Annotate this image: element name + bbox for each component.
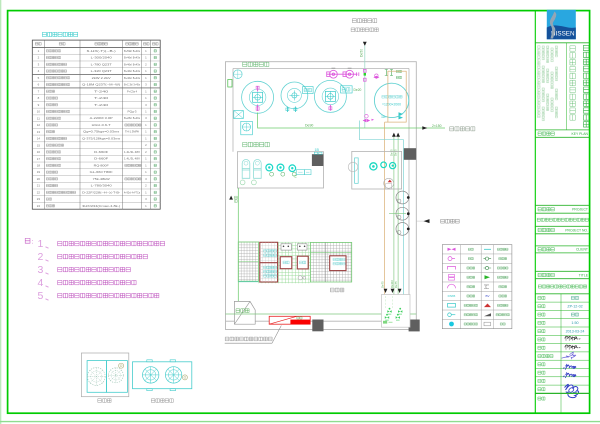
- svg-text:De75: De75: [380, 281, 384, 288]
- svg-text:4: 4: [38, 277, 44, 289]
- svg-text:BV: BV: [485, 294, 489, 298]
- svg-text:TH-1.3MPA: TH-1.3MPA: [125, 130, 139, 134]
- svg-text:6-HX(-T)(--B-): 6-HX(-T)(--B-): [87, 49, 116, 53]
- svg-text:De50: De50: [360, 49, 364, 57]
- svg-text:RQ-800F: RQ-800F: [94, 163, 109, 167]
- svg-text:L-320 Q23T: L-320 Q23T: [91, 69, 113, 73]
- svg-text:TITLE: TITLE: [579, 273, 589, 277]
- svg-text:D-660F: D-660F: [94, 150, 109, 154]
- svg-text:2kW 2.2kV: 2kW 2.2kV: [92, 76, 111, 80]
- svg-text:HGU-0.6-T: HGU-0.6-T: [92, 123, 112, 127]
- svg-text:2013-03-24: 2013-03-24: [566, 329, 585, 333]
- svg-text:10: 10: [37, 110, 41, 114]
- svg-text:23: 23: [37, 197, 41, 201]
- svg-text:75k-48kW: 75k-48kW: [93, 177, 111, 181]
- svg-text:Qg=0.75kgs=0.03ms: Qg=0.75kgs=0.03ms: [83, 130, 120, 134]
- svg-text:18: 18: [37, 164, 41, 168]
- svg-text:T-240: T-240: [94, 89, 109, 93]
- svg-text:L-300/2040: L-300/2040: [91, 56, 113, 60]
- svg-text:2: 2: [38, 251, 44, 263]
- svg-text:3HX/234(Cmax-4.8k-): 3HX/234(Cmax-4.8k-): [82, 204, 120, 208]
- svg-text:De75: De75: [394, 149, 398, 156]
- svg-text:16: 16: [37, 150, 41, 154]
- svg-text:D-660F: D-660F: [94, 157, 109, 161]
- svg-text:L-780/3040: L-780/3040: [91, 184, 113, 188]
- svg-text:14: 14: [37, 137, 41, 141]
- svg-text:1B: 1B: [315, 148, 320, 152]
- svg-text:B+46s/ B+43s: B+46s/ B+43s: [124, 69, 141, 73]
- svg-text:De20: De20: [354, 88, 362, 92]
- svg-text:1A: 1A: [381, 115, 386, 119]
- svg-text:21: 21: [37, 184, 41, 188]
- svg-text:5: 5: [38, 290, 44, 302]
- svg-text:De75: De75: [394, 281, 398, 288]
- svg-text:17: 17: [37, 157, 41, 161]
- svg-text:PROJECT NO.: PROJECT NO.: [565, 228, 588, 232]
- svg-text:T-240: T-240: [94, 96, 109, 100]
- svg-text:GL-660 T80F: GL-660 T80F: [90, 170, 114, 174]
- svg-text:A-220M 3.0P: A-220M 3.0P: [90, 116, 113, 120]
- svg-text:B+46s/ B+43s: B+46s/ B+43s: [124, 56, 141, 60]
- svg-text:=1200×2000: =1200×2000: [382, 102, 401, 106]
- svg-text:1.4L/3L 48V: 1.4L/3L 48V: [124, 157, 140, 161]
- svg-text:B+46s/ B+43s: B+46s/ B+43s: [124, 62, 141, 66]
- svg-text:1:50: 1:50: [571, 321, 578, 325]
- svg-text:PROJECT: PROJECT: [572, 208, 588, 212]
- svg-text:Q-18M Q23T(--M--W): Q-18M Q23T(--M--W): [82, 83, 120, 87]
- svg-text:B+59k/ B+40s: B+59k/ B+40s: [124, 49, 141, 53]
- svg-text:T-240: T-240: [94, 103, 109, 107]
- svg-text:B+C.3k/ 3+45s: B+C.3k/ 3+45s: [124, 83, 141, 87]
- svg-text:DN65: DN65: [448, 294, 456, 298]
- svg-text:13: 13: [37, 130, 41, 134]
- svg-text:20: 20: [37, 177, 41, 181]
- svg-text:22: 22: [37, 190, 41, 194]
- svg-text:11: 11: [37, 116, 40, 120]
- svg-text:D-22F/228(--H--)(-T-B-: D-22F/228(--H--)(-T-B-: [82, 190, 120, 194]
- svg-text:12: 12: [37, 123, 41, 127]
- svg-text:Q-375/128kgs=0.03ms: Q-375/128kgs=0.03ms: [82, 136, 121, 140]
- svg-text:3: 3: [38, 264, 44, 276]
- svg-text:4+92s/ 4+F7Ca: 4+92s/ 4+F7Ca: [124, 190, 140, 194]
- svg-text:24: 24: [37, 204, 41, 208]
- svg-text:1: 1: [38, 238, 44, 250]
- svg-text:ZP-12-02: ZP-12-02: [567, 305, 582, 309]
- svg-text:De110: De110: [390, 280, 394, 288]
- svg-text:19: 19: [37, 170, 41, 174]
- svg-text:De90: De90: [305, 123, 313, 127]
- svg-text:15: 15: [37, 143, 41, 147]
- svg-text:KEY PLAN: KEY PLAN: [571, 132, 588, 136]
- svg-text:P+C3a 4: P+C3a 4: [127, 89, 138, 93]
- svg-text:B+28s/ B+46s: B+28s/ B+46s: [124, 116, 141, 120]
- svg-text:B+46s/ B+43s: B+46s/ B+43s: [124, 76, 141, 80]
- svg-text:L-780 Q23T: L-780 Q23T: [91, 62, 113, 66]
- svg-text:2×150: 2×150: [432, 124, 442, 128]
- svg-text:CLIENT: CLIENT: [576, 248, 588, 252]
- svg-text:1.4L/3L 48V: 1.4L/3L 48V: [124, 150, 140, 154]
- svg-text:PQg-3: PQg-3: [128, 110, 138, 114]
